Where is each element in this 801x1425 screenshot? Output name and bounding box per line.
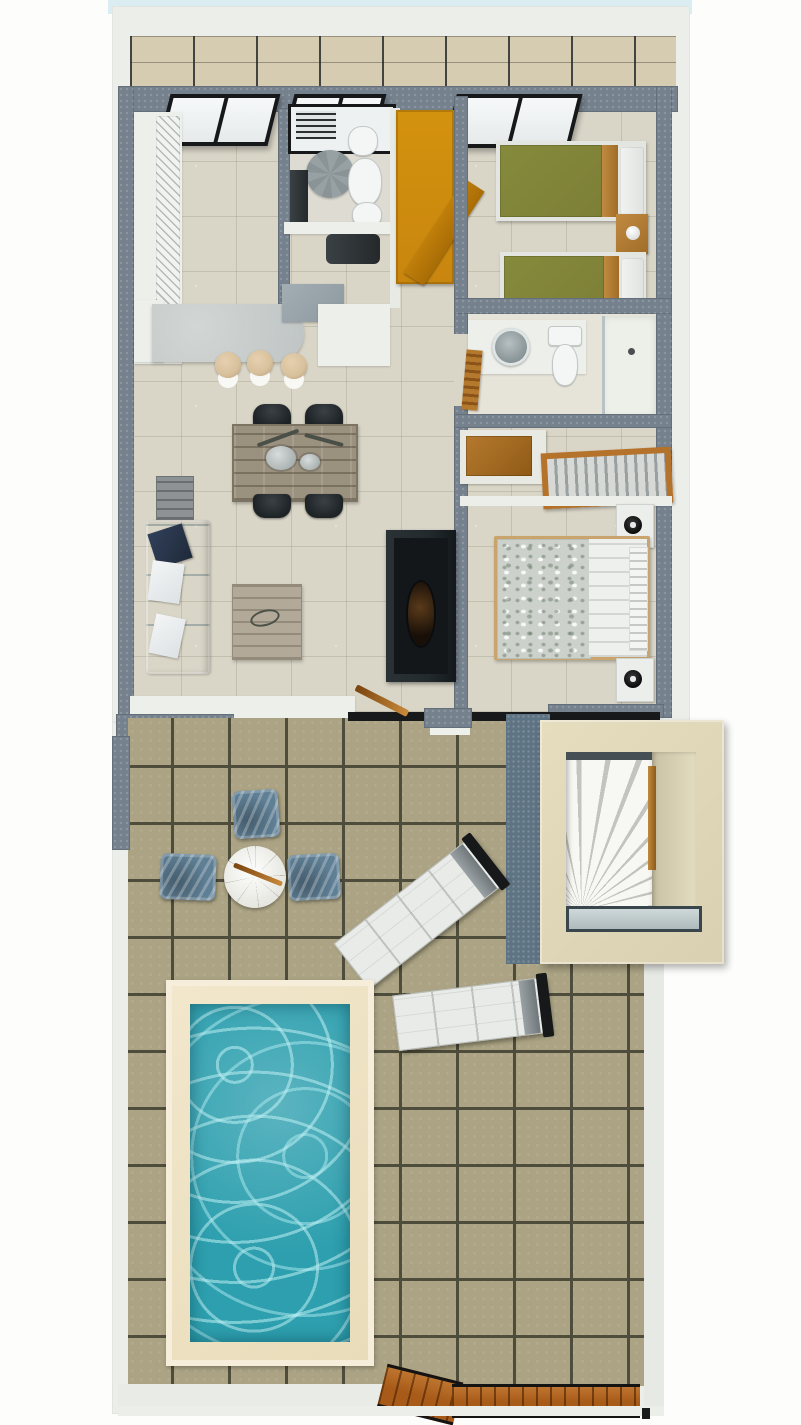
bar-stool	[247, 350, 273, 376]
walk-in-shower	[602, 316, 656, 418]
single-bed-1-headboard	[602, 145, 618, 217]
window-mullion	[507, 98, 522, 144]
teapot	[266, 446, 296, 470]
side-table	[156, 476, 194, 520]
wardrobe-door-panel	[466, 436, 532, 476]
double-bed-duvet	[497, 539, 591, 659]
washbasin	[348, 158, 382, 206]
toilet2-tank	[548, 326, 582, 346]
door-sill	[430, 728, 470, 735]
glass-railing	[566, 906, 702, 932]
nightstand-lamp	[626, 226, 640, 240]
right-wall	[656, 86, 672, 718]
outdoor-armchair	[287, 853, 341, 902]
dining-chair	[305, 494, 343, 518]
desk-chair	[326, 234, 380, 264]
terrace-left-wall	[112, 736, 130, 850]
toilet	[348, 126, 378, 156]
table-lamp	[624, 516, 642, 534]
bottom-wall-band	[118, 1406, 664, 1416]
sofa-cushion-white	[147, 560, 184, 604]
decor-vase	[408, 582, 434, 646]
double-bed-pillows	[629, 547, 648, 651]
toilet2-bowl	[552, 344, 578, 386]
floor-plan-canvas	[0, 0, 801, 1425]
window-mullion	[214, 98, 229, 142]
vanity-desk	[318, 304, 390, 366]
shower-drain	[628, 348, 635, 355]
round-rug	[306, 150, 354, 198]
single-bed-1-pillow	[620, 147, 644, 215]
bathroom1-vanity	[290, 170, 308, 224]
left-wall	[118, 86, 134, 718]
single-bed-1-blanket	[500, 145, 602, 217]
stairwell-inner-wall	[652, 752, 696, 932]
sliding-door-pillar	[424, 708, 472, 728]
table-lamp	[624, 670, 642, 688]
bathroom1-shelf	[284, 222, 392, 234]
spiral-stairs	[566, 752, 652, 932]
bathroom2-bottom-wall	[454, 414, 672, 428]
balcony-tiles	[130, 36, 676, 88]
dining-chair	[253, 494, 291, 518]
wall-end-post	[642, 1408, 650, 1419]
pool-water	[190, 1004, 350, 1342]
bar-stool	[215, 352, 241, 378]
outdoor-armchair	[231, 788, 280, 839]
twin-bedroom-bottom-wall	[454, 298, 672, 314]
stair-stringer	[648, 766, 656, 870]
outdoor-armchair	[159, 853, 217, 901]
stair-rail-top	[566, 752, 652, 760]
dining-table	[232, 424, 358, 502]
vessel-sink	[492, 328, 530, 366]
bar-stool	[281, 353, 307, 379]
shower-grill	[296, 111, 336, 139]
cup	[300, 454, 320, 470]
outdoor-round-table	[224, 846, 286, 908]
